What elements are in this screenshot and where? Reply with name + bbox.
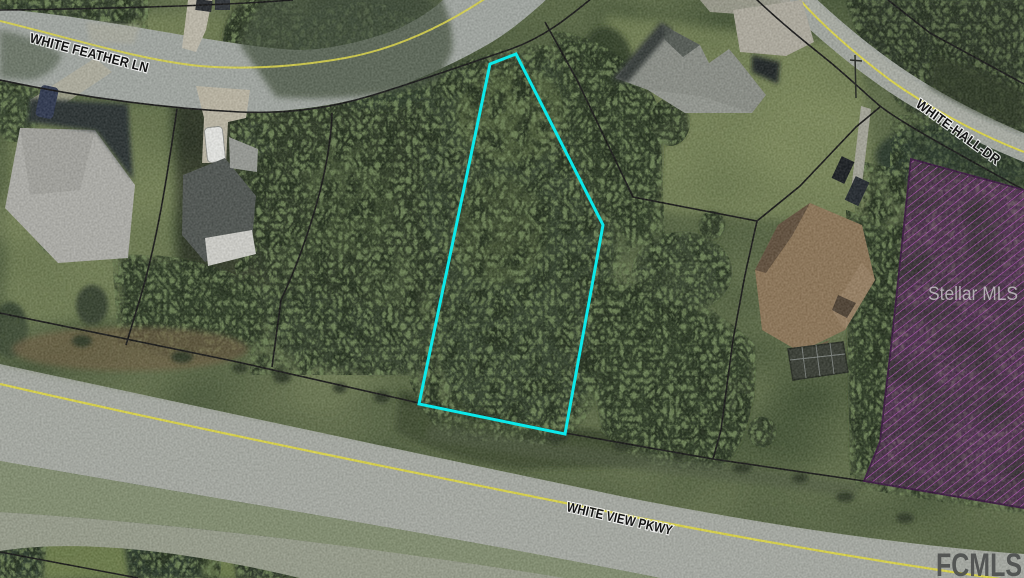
svg-text:Stellar MLS: Stellar MLS: [928, 284, 1018, 305]
svg-text:FCMLS: FCMLS: [936, 547, 1022, 578]
